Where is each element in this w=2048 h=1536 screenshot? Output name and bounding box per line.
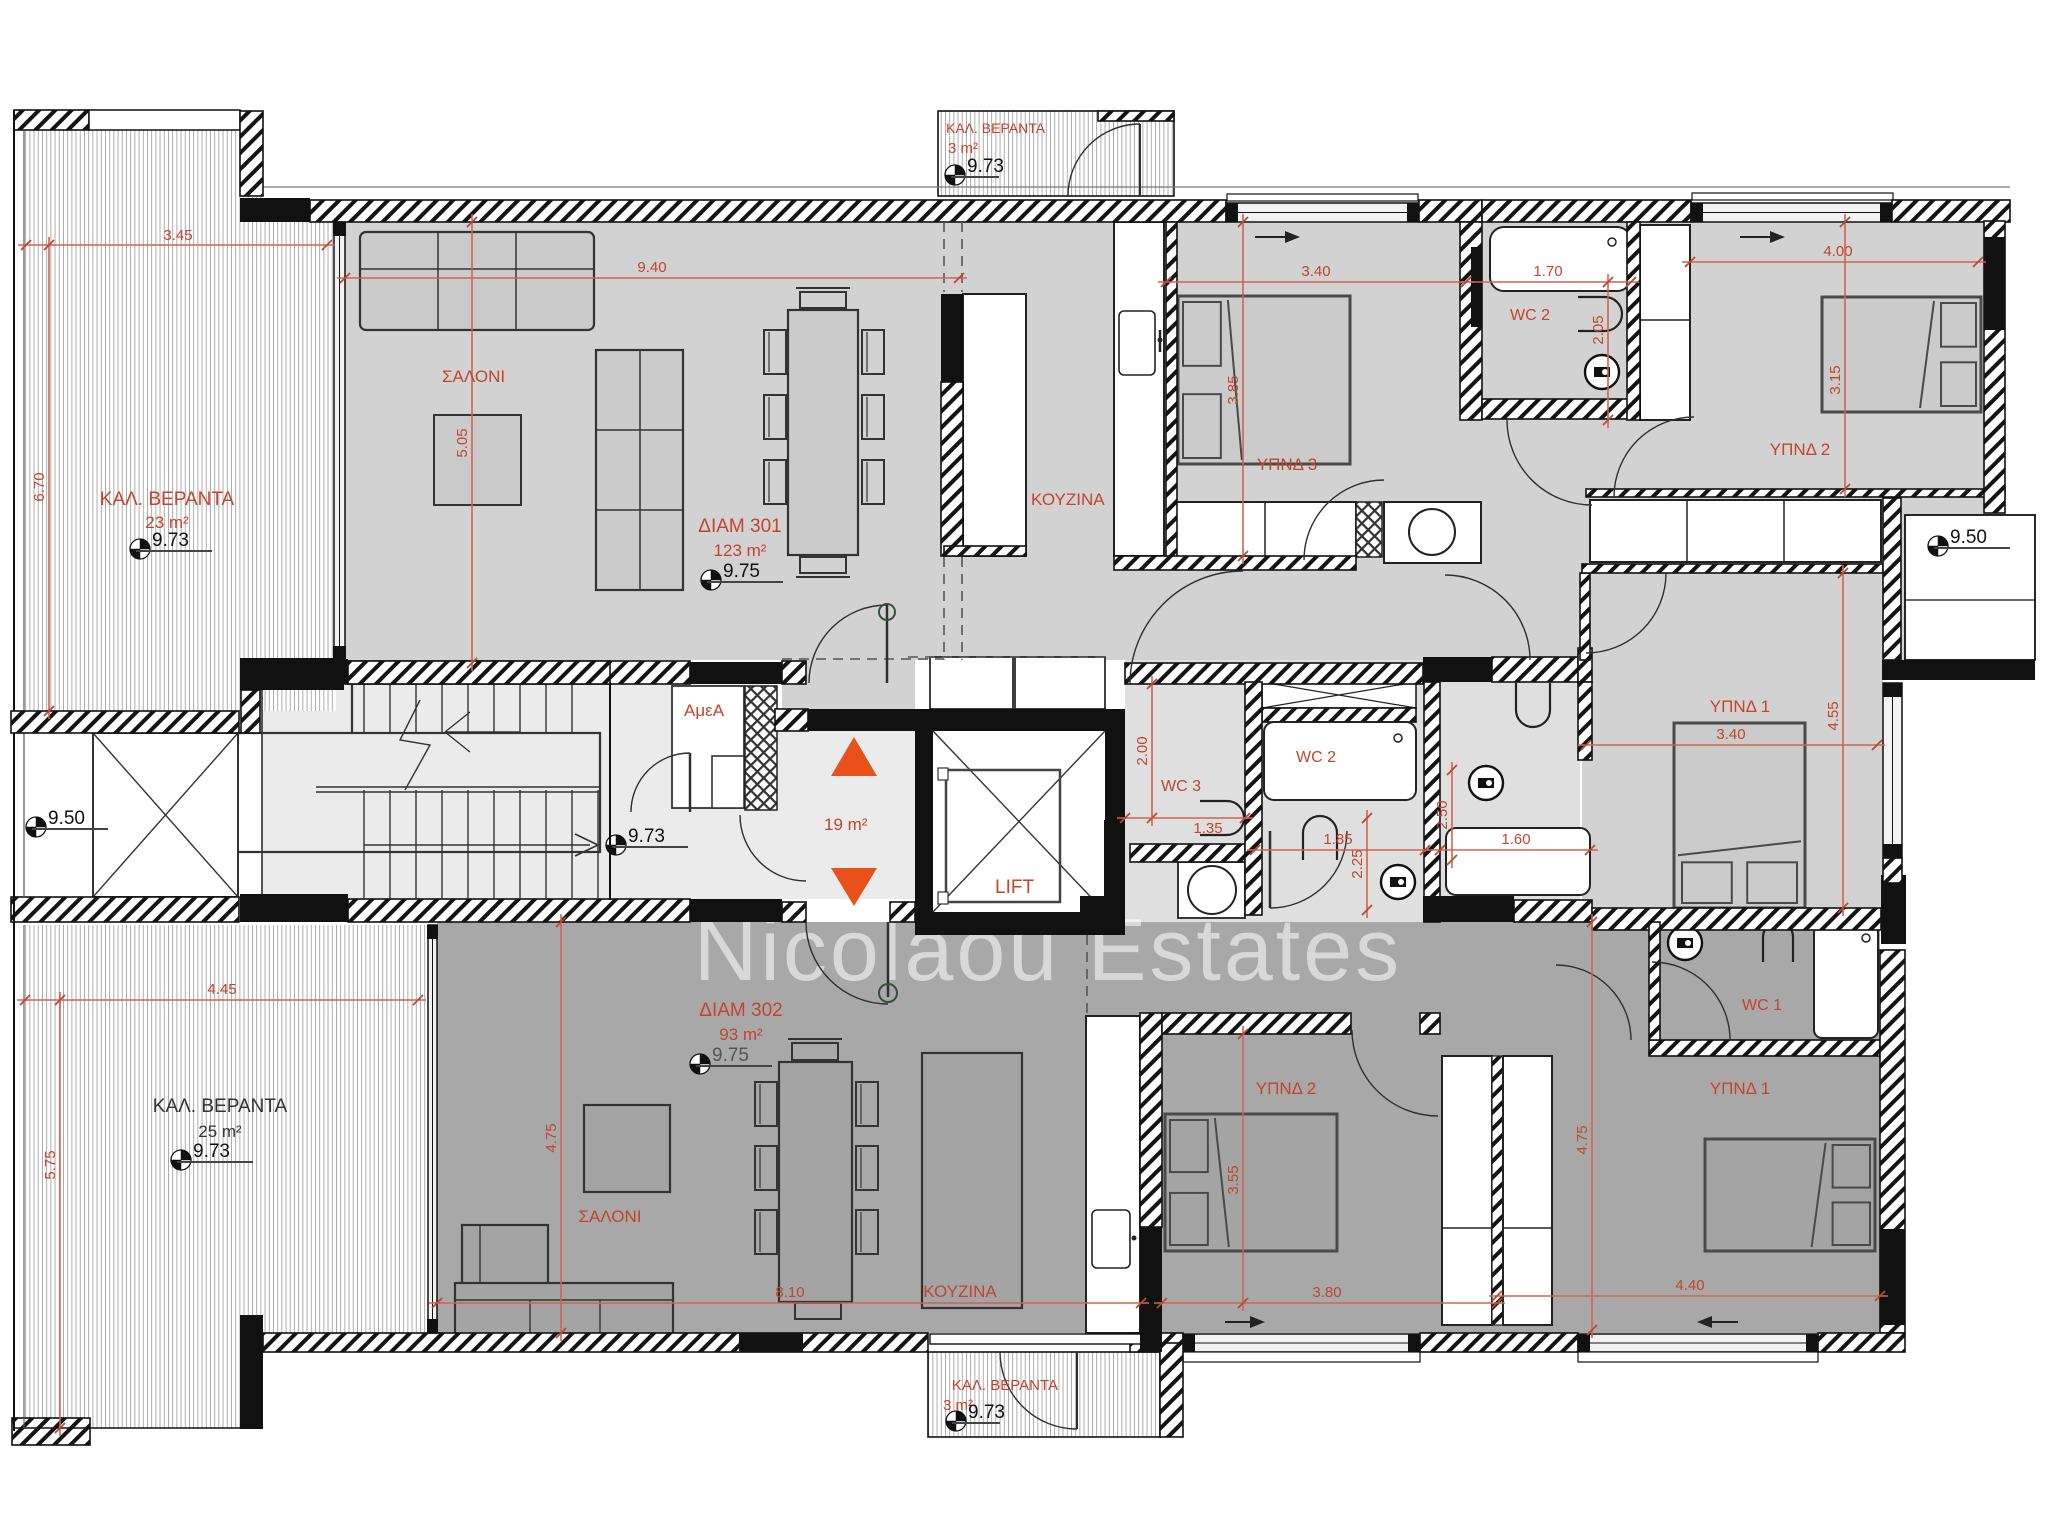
svg-text:WC 2: WC 2 [1510, 307, 1550, 324]
svg-text:93 m²: 93 m² [719, 1025, 763, 1044]
svg-text:9.73: 9.73 [152, 530, 189, 551]
svg-text:1.70: 1.70 [1533, 263, 1562, 280]
svg-text:9.75: 9.75 [723, 561, 760, 582]
svg-text:ΔΙΑΜ 301: ΔΙΑΜ 301 [698, 516, 781, 537]
svg-text:9.73: 9.73 [968, 1402, 1005, 1423]
svg-text:WC 2: WC 2 [1296, 749, 1336, 766]
svg-text:3 m²: 3 m² [948, 140, 978, 157]
svg-text:123 m²: 123 m² [714, 541, 767, 560]
svg-text:3.55: 3.55 [1225, 1165, 1242, 1194]
svg-text:2.25: 2.25 [1349, 849, 1366, 878]
svg-text:4.75: 4.75 [543, 1123, 560, 1152]
svg-text:3.40: 3.40 [1301, 263, 1330, 280]
svg-text:9.73: 9.73 [628, 826, 665, 847]
svg-text:1.35: 1.35 [1193, 820, 1222, 837]
svg-text:LIFT: LIFT [995, 877, 1034, 898]
svg-text:3.45: 3.45 [163, 227, 192, 244]
svg-text:ΣΑΛΟΝΙ: ΣΑΛΟΝΙ [442, 367, 505, 386]
svg-text:ΥΠΝΔ 1: ΥΠΝΔ 1 [1710, 1079, 1771, 1098]
svg-text:9.50: 9.50 [48, 808, 85, 829]
svg-text:ΚΑΛ. ΒΕΡΑΝΤΑ: ΚΑΛ. ΒΕΡΑΝΤΑ [952, 1377, 1058, 1394]
svg-text:9.50: 9.50 [1950, 527, 1987, 548]
svg-text:25 m²: 25 m² [198, 1122, 242, 1141]
svg-text:ΣΑΛΟΝΙ: ΣΑΛΟΝΙ [578, 1207, 641, 1226]
svg-text:3.85: 3.85 [1225, 375, 1242, 404]
svg-text:4.00: 4.00 [1823, 243, 1852, 260]
svg-text:ΑμεΑ: ΑμεΑ [684, 701, 725, 720]
svg-text:6.70: 6.70 [31, 472, 48, 501]
svg-text:2.05: 2.05 [1590, 315, 1607, 344]
svg-text:4.40: 4.40 [1675, 1277, 1704, 1294]
svg-text:19 m²: 19 m² [824, 815, 868, 834]
svg-text:ΥΠΝΔ 3: ΥΠΝΔ 3 [1257, 455, 1318, 474]
svg-text:3.15: 3.15 [1827, 365, 1844, 394]
svg-text:2.50: 2.50 [1434, 800, 1451, 829]
svg-text:9.73: 9.73 [193, 1141, 230, 1162]
svg-text:9.40: 9.40 [637, 259, 666, 276]
svg-text:8.10: 8.10 [775, 1284, 804, 1301]
svg-text:2.00: 2.00 [1134, 736, 1151, 765]
svg-text:ΚΟΥΖΙΝΑ: ΚΟΥΖΙΝΑ [1031, 490, 1105, 509]
svg-text:1.85: 1.85 [1323, 831, 1352, 848]
svg-text:WC 3: WC 3 [1161, 778, 1201, 795]
svg-text:4.55: 4.55 [1825, 701, 1842, 730]
svg-text:3.80: 3.80 [1312, 1284, 1341, 1301]
svg-text:1.60: 1.60 [1501, 831, 1530, 848]
svg-text:9.73: 9.73 [967, 156, 1004, 177]
svg-text:ΚΟΥΖΙΝΑ: ΚΟΥΖΙΝΑ [923, 1282, 997, 1301]
svg-text:9.75: 9.75 [712, 1045, 749, 1066]
svg-text:ΔΙΑΜ 302: ΔΙΑΜ 302 [699, 1000, 782, 1021]
svg-text:ΥΠΝΔ 2: ΥΠΝΔ 2 [1770, 440, 1831, 459]
svg-text:WC 1: WC 1 [1742, 997, 1782, 1014]
svg-text:ΥΠΝΔ 2: ΥΠΝΔ 2 [1256, 1079, 1317, 1098]
svg-text:5.75: 5.75 [42, 1150, 59, 1179]
svg-text:4.75: 4.75 [1574, 1125, 1591, 1154]
svg-text:ΥΠΝΔ 1: ΥΠΝΔ 1 [1710, 697, 1771, 716]
svg-text:4.45: 4.45 [207, 981, 236, 998]
svg-text:ΚΑΛ. ΒΕΡΑΝΤΑ: ΚΑΛ. ΒΕΡΑΝΤΑ [946, 120, 1046, 136]
svg-text:5.05: 5.05 [454, 428, 471, 457]
svg-text:3.40: 3.40 [1716, 726, 1745, 743]
svg-text:ΚΑΛ. ΒΕΡΑΝΤΑ: ΚΑΛ. ΒΕΡΑΝΤΑ [153, 1096, 288, 1117]
svg-text:ΚΑΛ. ΒΕΡΑΝΤΑ: ΚΑΛ. ΒΕΡΑΝΤΑ [100, 489, 235, 510]
